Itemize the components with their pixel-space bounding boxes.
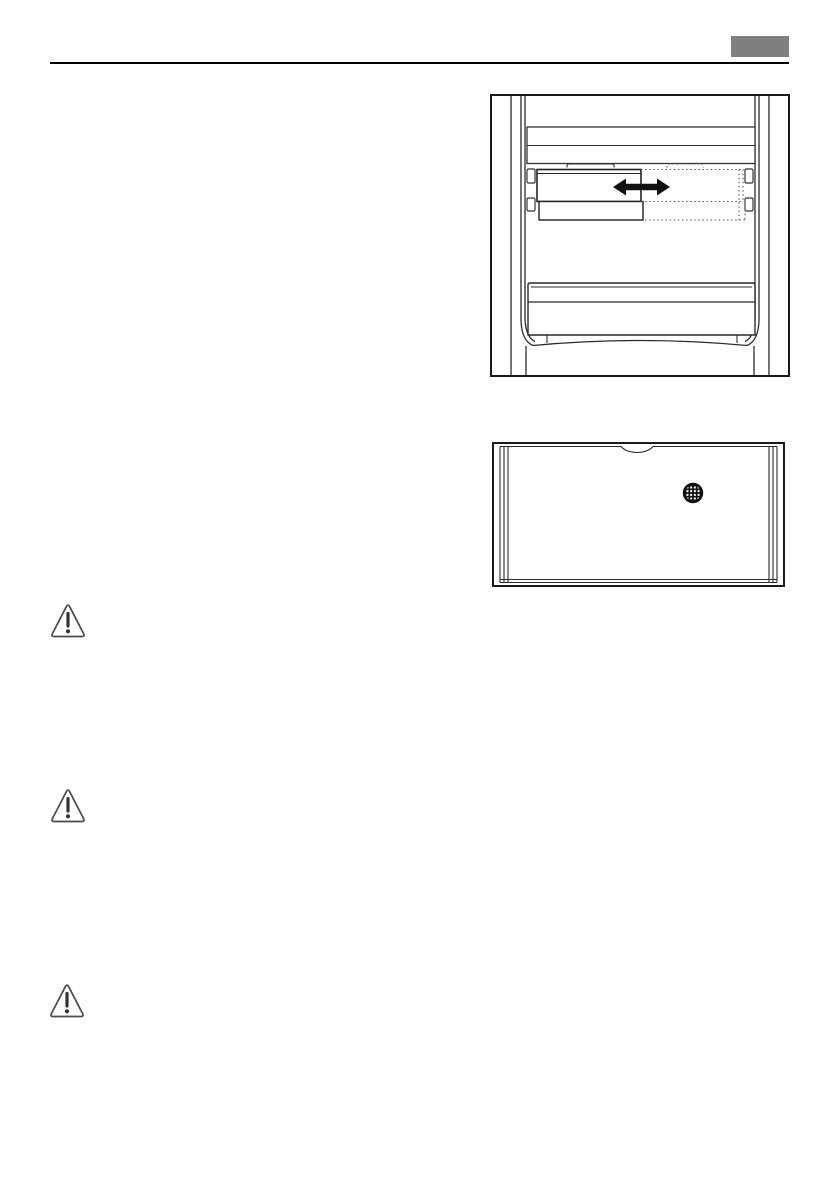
page-number-badge: [731, 36, 789, 57]
top-compartment: [527, 127, 755, 164]
warning-triangle-icon: [49, 982, 85, 1020]
manual-page: [0, 0, 840, 1190]
figure-frame: [493, 443, 784, 586]
cover-panel-figure: [492, 442, 785, 587]
header-rule: [50, 62, 789, 64]
sliding-shelf-figure: [490, 94, 790, 377]
sliding-shelf: [537, 170, 643, 221]
warning-triangle-icon: [50, 602, 86, 640]
warning-triangle-icon: [50, 787, 86, 825]
